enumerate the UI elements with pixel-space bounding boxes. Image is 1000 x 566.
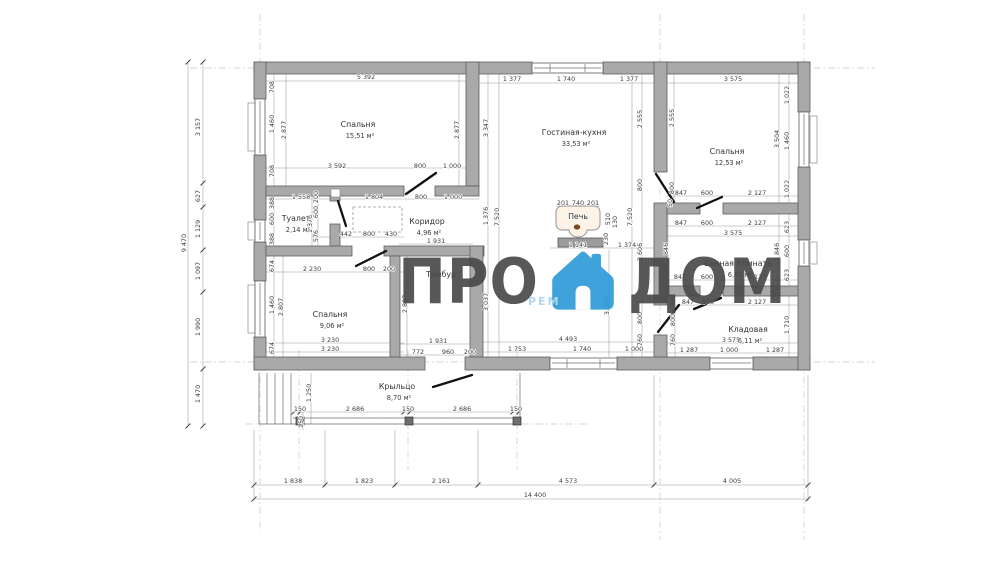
room-area-label: 15,51 м² [346,132,375,140]
dim-label: 230 [602,233,610,245]
dim-label: 1 376 [482,207,490,225]
dim-label: 1 740 [557,75,575,83]
dim-label: 1 753 [508,345,526,353]
room-area-label: 12,53 м² [715,159,744,167]
dim-label: 3 037 [482,293,490,311]
dim-label: 800 [636,312,644,324]
dim-label: 3 504 [773,130,781,148]
dim-label: 3 230 [321,336,339,344]
dim-label: 1 470 [194,385,202,403]
window-top-living [532,63,603,73]
dim-label: 1 022 [783,86,791,104]
dim-label: 7 520 [493,208,501,226]
dim-label: 1 141 [569,241,587,249]
dim-label: 200 [464,348,476,356]
dim-label: 1 377 [503,75,521,83]
dim-label: 1 838 [284,477,302,485]
dim-label: 1 374 [618,241,636,249]
dim-label: 3 575 [724,229,742,237]
dim-label: 772 [412,348,424,356]
dim-label: 50 [666,199,674,207]
room-area-label: 6,11 м² [738,337,763,345]
room-label: Спальня [710,147,745,156]
dim-label: 3 066 [603,297,611,315]
dim-label: 3 592 [328,162,346,170]
dim-label: 201 [587,199,599,207]
dim-label: 3 157 [194,118,202,136]
dim-label: 4 493 [559,335,577,343]
dim-label: 442 [340,230,352,238]
dim-label: 1 990 [194,318,202,336]
dim-label: 1 460 [783,132,791,150]
dim-label: 1 250 [305,384,313,402]
dim-label: 1 287 [766,346,784,354]
door-leaf-toilet [338,201,346,226]
dim-label: 4 573 [559,477,577,485]
stove-dot [574,224,580,229]
porch-post [513,417,521,425]
door-leaf-bedroom2 [356,251,386,266]
dim-label: 2 230 [303,265,321,273]
axis-lines [190,14,875,540]
dim-label: 430 [385,230,397,238]
room-label: Спальня [313,310,348,319]
dim-label: 2 127 [748,189,766,197]
dim-label: 800 [636,179,644,191]
dim-label: 600 [701,273,713,281]
dim-label: 201 [557,199,569,207]
dim-label: 1 000 [444,193,462,201]
dim-label: 847 [675,219,687,227]
dim-label: 600 [268,213,276,225]
dim-label: 1 097 [194,262,202,280]
dim-label: 2 555 [636,110,644,128]
dim-label: 1 460 [268,115,276,133]
dim-label: 1 558 [292,193,310,201]
dim-label: 2 555 [668,109,676,127]
dim-label: 623 [783,269,791,281]
dim-label: 708 [268,165,276,177]
room-area-label: 33,53 м² [562,140,591,148]
dim-label: 1 000 [443,162,461,170]
dim-label: 800 [363,265,375,273]
room-label: Тамбур [425,270,456,279]
dim-label: 5 392 [357,73,375,81]
dim-label: 1 460 [268,296,276,314]
dim-label: 130 [611,216,619,228]
dim-label: 7 520 [626,208,634,226]
dim-label: 600 [702,298,714,306]
dim-label: 200 [312,191,320,203]
dim-label: 847 [675,189,687,197]
dim-label: 2 127 [748,298,766,306]
dim-label: 847 [674,273,686,281]
dim-label: 2 807 [401,295,409,313]
dim-label: 1 846 [662,243,670,261]
dim-label: 2 877 [280,121,288,139]
dim-label: 674 [268,342,276,354]
room-area-label: 6,60 м² [728,271,753,279]
dim-label: 600 [701,189,713,197]
dim-label: 800 [415,193,427,201]
dim-label: 1 740 [573,345,591,353]
dim-label: 2 686 [346,405,364,413]
dim-label: 600 [783,245,791,257]
dim-label: 3 347 [482,119,490,137]
dim-label: 388 [268,233,276,245]
room-area-label: 9,06 м² [320,322,345,330]
dim-label: 50 [669,297,677,305]
dim-label: 2 686 [453,405,471,413]
dim-label: 1 000 [720,346,738,354]
dim-label: 1 846 [773,243,781,261]
floor-plan-drawing: 5 3921 3771 7401 3773 5753 5928001 0001 … [0,0,1000,566]
dim-label: 600 [701,219,713,227]
room-label: Спальня [341,120,376,129]
door-leaf-entrance [433,375,472,387]
dim-label: 627 [194,190,202,202]
dim-label: 1 287 [680,346,698,354]
dim-label: 2 161 [432,477,450,485]
window-left-bedroom1 [255,99,265,155]
window-bottom-living [550,358,617,369]
room-area-label: 2,14 м² [286,226,311,234]
dim-label: 760 [669,334,677,346]
room-area-label: 8,70 м² [387,394,412,402]
dim-label: 388 [268,197,276,209]
dim-label: 150 [402,405,414,413]
wardrobe-dashed [353,207,402,232]
room-label: Крыльцо [379,382,416,391]
door-leaf-bathroom [697,197,722,208]
dim-label: 760 [636,334,644,346]
dim-label: 150 [294,405,306,413]
room-label: Печь [568,212,588,221]
window-left-toilet [255,220,265,242]
dim-label: 200 [383,265,395,273]
dim-label: 623 [783,221,791,233]
dim-label: 4 005 [723,477,741,485]
room-label: Кладовая [728,325,768,334]
wall-pier [331,189,340,197]
dim-label: 2 127 [748,219,766,227]
dim-label: 740 [572,199,584,207]
dim-label: 2 606 [636,243,644,261]
dim-label: 1 931 [429,337,447,345]
window-left-bedroom2 [255,281,265,337]
dim-label: 800 [669,314,677,326]
dim-label: 800 [363,230,375,238]
room-area-label: 4,96 м² [417,229,442,237]
dim-label: 1 823 [355,477,373,485]
dim-label: 1 931 [427,237,445,245]
dim-label: 1 022 [783,180,791,198]
dim-label: 2 807 [277,298,285,316]
window-right-bedroom3 [799,112,809,167]
room-label: Туалет [281,214,311,223]
dim-label: 847 [682,298,694,306]
dim-label: 150 [510,405,522,413]
room-label: Коридор [409,217,444,226]
dim-label: 708 [268,81,276,93]
dim-label: 1 804 [365,193,383,201]
dim-label: 2 877 [453,121,461,139]
dim-label: 9 470 [180,234,188,252]
floor-plan-page: 5 3921 3771 7401 3773 5753 5928001 0001 … [0,0,1000,566]
window-right-bathroom [799,240,809,266]
dim-label: 3 230 [321,345,339,353]
dim-label: 960 [442,348,454,356]
dim-label: 674 [268,260,276,272]
dim-label: 1 710 [783,316,791,334]
window-bottom-storeroom [710,358,753,369]
dim-label: 14 400 [524,491,546,499]
porch-post [405,417,413,425]
door-leaf-bedroom1 [406,173,436,194]
room-label: Гостиная-кухня [542,128,607,137]
dim-label: 800 [668,182,676,194]
dim-label: 1 377 [620,75,638,83]
room-label: Ванная Комната [704,259,772,268]
dim-label: 800 [414,162,426,170]
dim-label: 1 129 [194,220,202,238]
dim-label: 150 [297,416,305,428]
dim-label: 3 575 [724,75,742,83]
